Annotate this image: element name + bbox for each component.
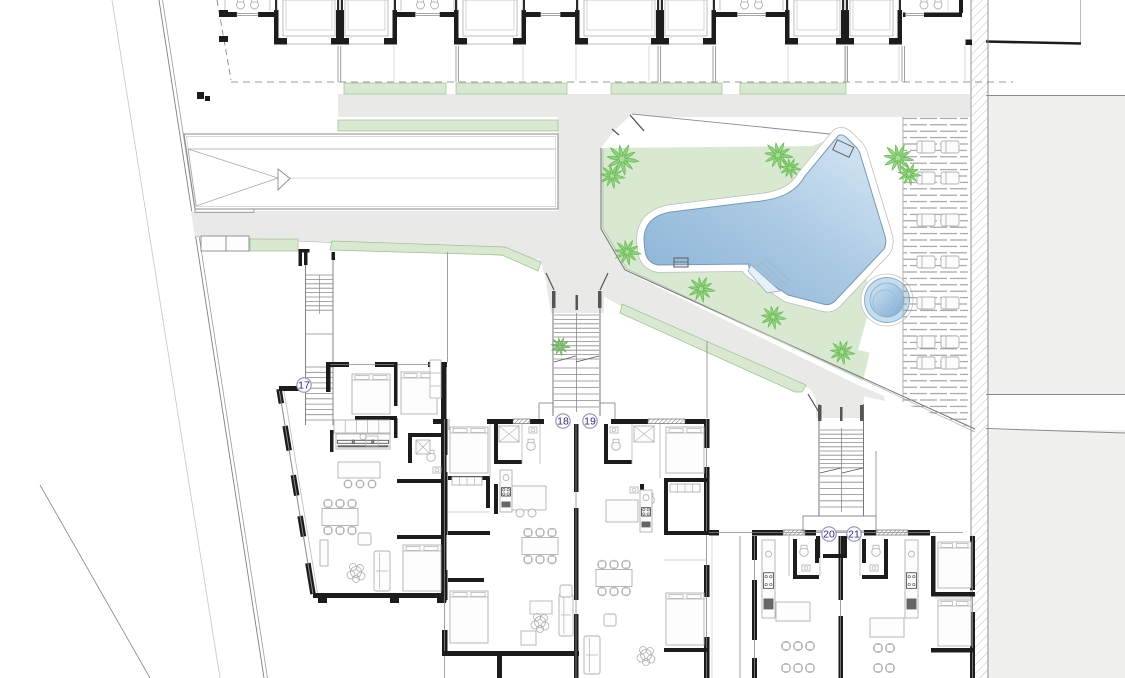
svg-text:20: 20: [823, 529, 835, 541]
svg-text:17: 17: [298, 380, 310, 392]
svg-text:19: 19: [584, 416, 596, 428]
svg-text:18: 18: [557, 416, 569, 428]
svg-text:21: 21: [848, 529, 860, 541]
